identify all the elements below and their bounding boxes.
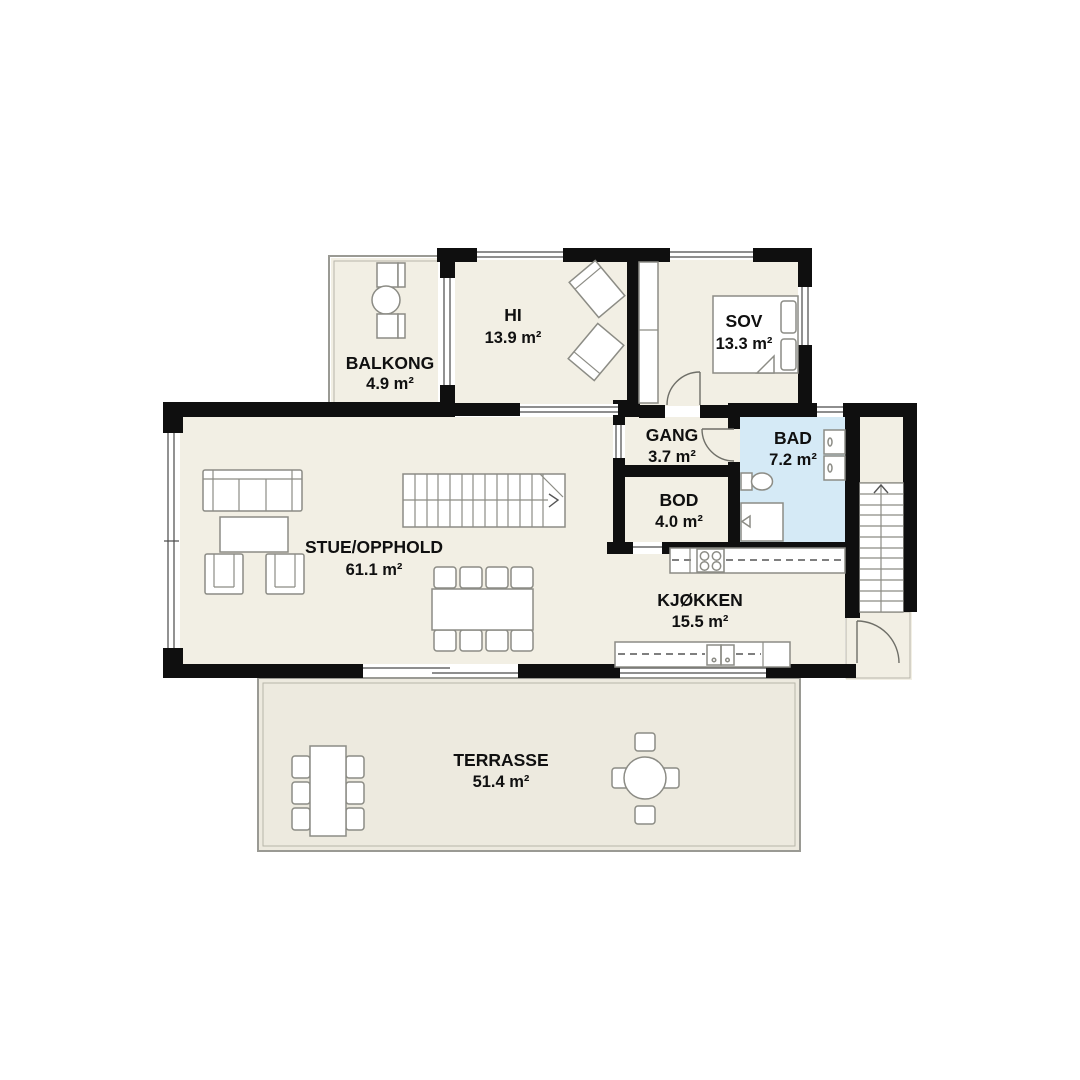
- svg-text:KJØKKEN: KJØKKEN: [657, 590, 743, 610]
- wall: [440, 248, 455, 278]
- svg-text:TERRASSE: TERRASSE: [453, 750, 548, 770]
- window-stue-left: [164, 433, 179, 648]
- svg-text:3.7 m²: 3.7 m²: [648, 448, 696, 466]
- balcony-set: [372, 263, 405, 338]
- terrace-chair: [292, 782, 310, 804]
- wall: [163, 402, 183, 433]
- floor-plan-canvas: BALKONG 4.9 m² HI 13.9 m² SOV 13.3 m² GA…: [0, 0, 1080, 1080]
- terrace-table: [310, 746, 346, 836]
- svg-text:51.4 m²: 51.4 m²: [473, 773, 530, 791]
- svg-text:BALKONG: BALKONG: [346, 353, 434, 373]
- svg-text:BOD: BOD: [660, 490, 699, 510]
- floor-plan-drawing: BALKONG 4.9 m² HI 13.9 m² SOV 13.3 m² GA…: [0, 0, 1080, 1080]
- svg-text:4.0 m²: 4.0 m²: [655, 513, 703, 531]
- svg-text:7.2 m²: 7.2 m²: [769, 451, 817, 469]
- terrace-chair: [346, 808, 364, 830]
- dining-chair: [511, 567, 533, 588]
- wall: [518, 664, 620, 678]
- terrace-chair: [635, 806, 655, 824]
- kitchen-counter: [670, 548, 845, 573]
- pillow: [781, 339, 796, 370]
- svg-text:GANG: GANG: [646, 425, 699, 445]
- dining-chair: [460, 630, 482, 651]
- kitchen-island: [615, 642, 790, 667]
- opening-bod-kitchen: [633, 542, 662, 554]
- dining-chair: [434, 630, 456, 651]
- svg-text:SOV: SOV: [726, 311, 763, 331]
- window-sov-right: [799, 287, 811, 345]
- staircase-horizontal: [403, 474, 565, 527]
- wall: [163, 664, 363, 678]
- dining-chair: [460, 567, 482, 588]
- wall: [798, 248, 812, 287]
- balcony-chair: [377, 314, 398, 338]
- sliding-door-terrace: [363, 664, 518, 677]
- wall: [728, 462, 740, 542]
- dining-chair: [511, 630, 533, 651]
- terrace-chair: [292, 756, 310, 778]
- svg-text:13.9 m²: 13.9 m²: [485, 329, 542, 347]
- terrace-round-table: [624, 757, 666, 799]
- svg-text:BAD: BAD: [774, 428, 812, 448]
- wall: [563, 248, 670, 262]
- wall: [903, 403, 917, 612]
- terrace-dining-set: [292, 746, 364, 836]
- wall: [639, 405, 665, 418]
- pillow: [781, 301, 796, 333]
- shower: [741, 503, 783, 541]
- balcony-chair: [377, 263, 398, 287]
- terrace-chair: [346, 782, 364, 804]
- window-hi-balcony: [441, 278, 453, 385]
- dining-chair: [486, 567, 508, 588]
- svg-text:13.3 m²: 13.3 m²: [716, 335, 773, 353]
- coffee-table: [220, 517, 288, 552]
- armchair: [266, 554, 304, 594]
- terrace-chair: [635, 733, 655, 751]
- dining-chair: [434, 567, 456, 588]
- armchair: [205, 554, 243, 594]
- window-hi-top: [477, 249, 563, 260]
- staircase-vertical: [860, 483, 903, 612]
- wall: [740, 403, 817, 417]
- balcony-table: [372, 286, 400, 314]
- dining-chair: [486, 630, 508, 651]
- terrace-chair: [346, 756, 364, 778]
- wall: [845, 403, 860, 618]
- stair-landing-floor: [858, 417, 903, 483]
- window-sov-top: [670, 249, 753, 260]
- sofa: [203, 470, 302, 511]
- window-hi-stue-internal: [520, 404, 618, 415]
- svg-text:STUE/OPPHOLD: STUE/OPPHOLD: [305, 537, 443, 557]
- svg-text:61.1 m²: 61.1 m²: [346, 561, 403, 579]
- wardrobe: [639, 262, 658, 403]
- wall: [627, 248, 639, 405]
- opening-stue-gang: [613, 425, 625, 458]
- wall: [613, 465, 740, 477]
- window-bad-top: [817, 404, 843, 416]
- toilet: [741, 473, 773, 490]
- svg-text:15.5 m²: 15.5 m²: [672, 613, 729, 631]
- svg-text:HI: HI: [504, 305, 522, 325]
- terrace-chair: [292, 808, 310, 830]
- dining-set: [432, 567, 533, 651]
- svg-text:4.9 m²: 4.9 m²: [366, 375, 414, 393]
- wall: [607, 542, 633, 554]
- wall: [163, 402, 443, 417]
- dining-table: [432, 589, 533, 630]
- wall: [728, 403, 740, 429]
- wall: [443, 403, 520, 416]
